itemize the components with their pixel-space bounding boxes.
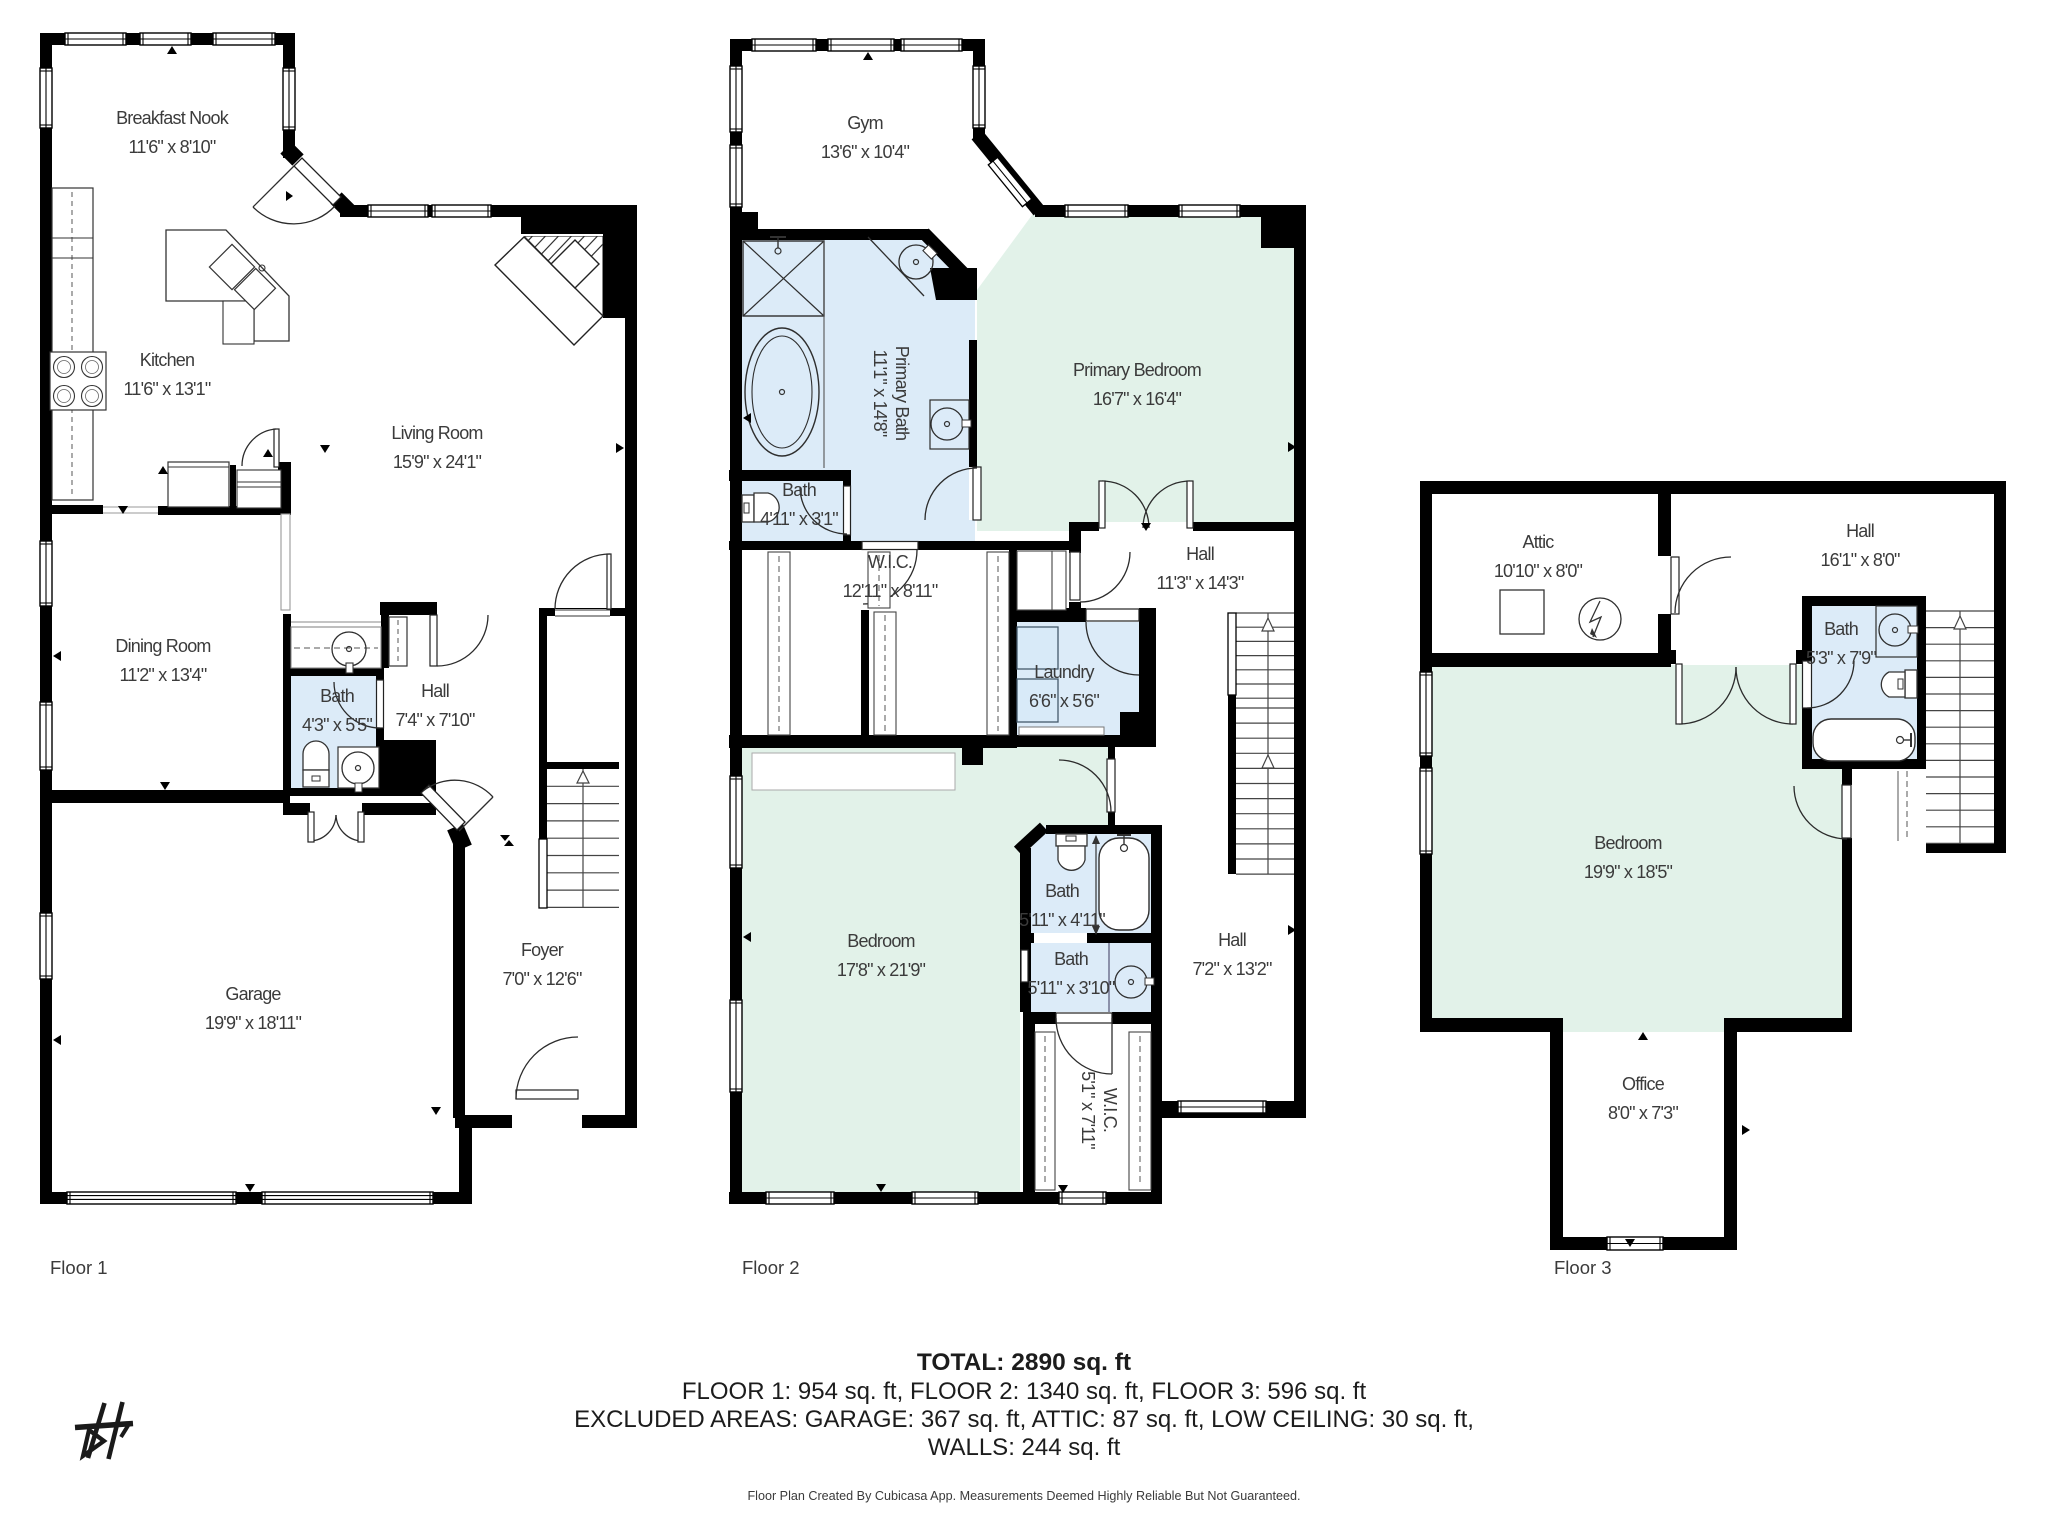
svg-text:17'8" x 21'9": 17'8" x 21'9" [837, 960, 926, 980]
svg-text:W.I.C.: W.I.C. [1100, 1088, 1120, 1132]
svg-text:Primary Bath: Primary Bath [892, 346, 912, 440]
svg-text:5'3" x 7'9": 5'3" x 7'9" [1806, 648, 1876, 668]
svg-text:Floor Plan Created By Cubicasa: Floor Plan Created By Cubicasa App. Meas… [747, 1489, 1300, 1503]
svg-text:Breakfast Nook: Breakfast Nook [116, 108, 230, 128]
svg-text:TOTAL: 2890 sq. ft: TOTAL: 2890 sq. ft [917, 1349, 1131, 1376]
svg-text:Floor 3: Floor 3 [1554, 1257, 1612, 1278]
svg-text:5'11" x 3'10": 5'11" x 3'10" [1028, 978, 1115, 998]
svg-text:Bath: Bath [1824, 619, 1858, 639]
svg-text:11'3" x 14'3": 11'3" x 14'3" [1157, 573, 1244, 593]
svg-text:Foyer: Foyer [521, 940, 564, 960]
svg-text:Laundry: Laundry [1034, 662, 1094, 682]
svg-text:5'11" x 4'11": 5'11" x 4'11" [1019, 910, 1105, 930]
svg-text:Floor 2: Floor 2 [742, 1257, 800, 1278]
svg-text:EXCLUDED AREAS: GARAGE: 367 sq: EXCLUDED AREAS: GARAGE: 367 sq. ft, ATTI… [574, 1406, 1474, 1433]
svg-text:Living Room: Living Room [391, 423, 482, 443]
svg-text:11'1" x 14'8": 11'1" x 14'8" [870, 350, 890, 437]
svg-text:Primary Bedroom: Primary Bedroom [1073, 360, 1201, 380]
svg-text:Bath: Bath [1045, 881, 1079, 901]
svg-text:Kitchen: Kitchen [140, 350, 194, 370]
svg-text:7'0" x 12'6": 7'0" x 12'6" [502, 969, 582, 989]
svg-text:Hall: Hall [421, 681, 449, 701]
svg-text:Hall: Hall [1186, 544, 1214, 564]
svg-text:6'6" x 5'6": 6'6" x 5'6" [1029, 691, 1099, 711]
svg-text:12'11" x 8'11": 12'11" x 8'11" [843, 581, 938, 601]
svg-text:Dining Room: Dining Room [115, 636, 210, 656]
svg-text:4'11" x 3'1": 4'11" x 3'1" [760, 509, 838, 529]
svg-text:16'7" x 16'4": 16'7" x 16'4" [1093, 389, 1182, 409]
svg-text:Hall: Hall [1218, 930, 1246, 950]
svg-text:11'2" x 13'4": 11'2" x 13'4" [120, 665, 207, 685]
svg-text:Gym: Gym [847, 113, 883, 133]
svg-text:7'4" x 7'10": 7'4" x 7'10" [395, 710, 475, 730]
svg-text:Bedroom: Bedroom [1594, 833, 1661, 853]
svg-text:10'10" x 8'0": 10'10" x 8'0" [1494, 561, 1583, 581]
svg-text:FLOOR 1: 954 sq. ft, FLOOR 2:: FLOOR 1: 954 sq. ft, FLOOR 2: 1340 sq. f… [682, 1378, 1367, 1405]
svg-text:11'6" x 8'10": 11'6" x 8'10" [129, 137, 216, 157]
svg-text:4'3" x 5'5": 4'3" x 5'5" [302, 715, 372, 735]
svg-text:8'0" x 7'3": 8'0" x 7'3" [1608, 1103, 1678, 1123]
svg-text:5'1" x 7'11": 5'1" x 7'11" [1078, 1071, 1098, 1149]
svg-text:Bath: Bath [320, 686, 354, 706]
svg-text:Bath: Bath [1054, 949, 1088, 969]
svg-text:13'6" x 10'4": 13'6" x 10'4" [821, 142, 910, 162]
svg-text:19'9" x 18'5": 19'9" x 18'5" [1584, 862, 1673, 882]
svg-text:16'1" x 8'0": 16'1" x 8'0" [1820, 550, 1900, 570]
svg-text:7'2" x 13'2": 7'2" x 13'2" [1192, 959, 1272, 979]
svg-text:Office: Office [1622, 1074, 1665, 1094]
svg-text:19'9" x 18'11": 19'9" x 18'11" [205, 1013, 302, 1033]
svg-text:Attic: Attic [1522, 532, 1554, 552]
svg-text:11'6" x 13'1": 11'6" x 13'1" [124, 379, 211, 399]
svg-text:WALLS: 244 sq. ft: WALLS: 244 sq. ft [928, 1434, 1121, 1461]
svg-text:Hall: Hall [1846, 521, 1874, 541]
svg-text:Bath: Bath [782, 480, 816, 500]
svg-text:Bedroom: Bedroom [847, 931, 914, 951]
svg-text:15'9" x 24'1": 15'9" x 24'1" [393, 452, 482, 472]
svg-text:W.I.C.: W.I.C. [868, 552, 912, 572]
svg-text:Garage: Garage [225, 984, 281, 1004]
svg-text:Floor 1: Floor 1 [50, 1257, 108, 1278]
